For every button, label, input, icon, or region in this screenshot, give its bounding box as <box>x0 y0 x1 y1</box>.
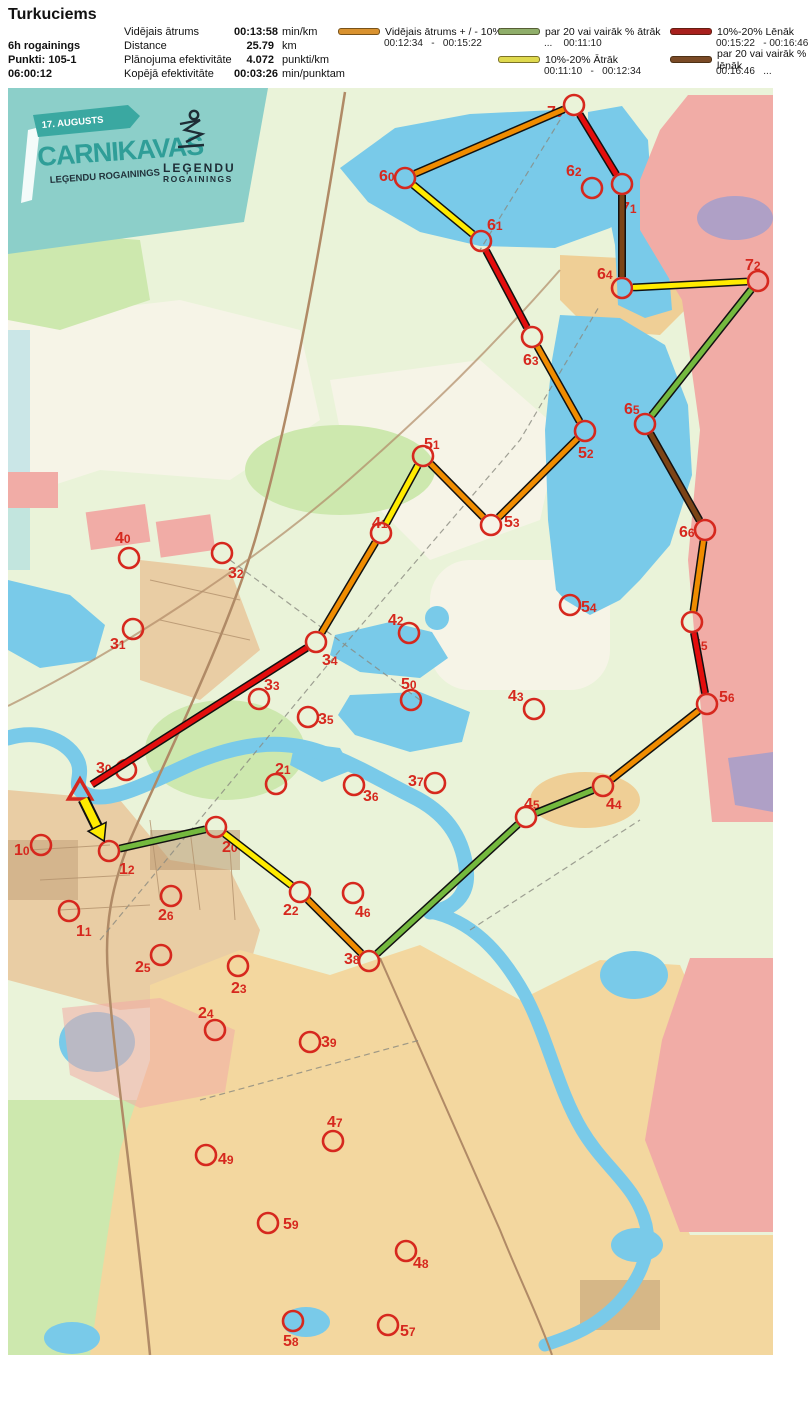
control-label: 46 <box>355 904 371 921</box>
control-label: 25 <box>135 959 151 976</box>
control-label: 10 <box>14 842 30 859</box>
stat-value: 00:13:58 <box>234 25 274 39</box>
legend-swatch <box>670 56 712 63</box>
legend-entry: 10%-20% Ātrāk00:11:10 - 00:12:34 <box>498 53 661 79</box>
legend-entry-row: par 20 vai vairāk % lēnāk <box>670 53 808 66</box>
control-label: 22 <box>283 902 299 919</box>
control-label: 53 <box>504 514 520 531</box>
meta-line: 6h rogainings <box>8 39 80 53</box>
stat-unit: punkti/km <box>282 53 329 67</box>
legend-column-2: par 20 vai vairāk % ātrāk... 00:11:1010%… <box>498 25 661 81</box>
legend-swatch <box>670 28 712 35</box>
legend-range: 00:12:34 - 00:15:22 <box>384 38 502 51</box>
control-label: 42 <box>388 612 404 629</box>
control-label: 49 <box>218 1151 234 1168</box>
meta-line: Punkti: 105-1 <box>8 53 80 67</box>
event-meta: 6h rogainingsPunkti: 105-106:00:12 <box>8 39 80 81</box>
stat-unit: min/punktam <box>282 67 345 81</box>
legend-label: Vidējais ātrums + / - 10% <box>385 26 502 38</box>
control-label: 21 <box>275 761 291 778</box>
control-label: 32 <box>228 565 244 582</box>
stat-unit: km <box>282 39 297 53</box>
legend-column-1: Vidējais ātrums + / - 10%00:12:34 - 00:1… <box>338 25 502 53</box>
control-label: 33 <box>264 677 280 694</box>
stat-value: 00:03:26 <box>234 67 274 81</box>
control-label: 31 <box>110 636 126 653</box>
control-label: 57 <box>400 1323 416 1340</box>
legend-column-3: 10%-20% Lēnāk00:15:22 - 00:16:46par 20 v… <box>670 25 808 81</box>
legend-entry: Vidējais ātrums + / - 10%00:12:34 - 00:1… <box>338 25 502 51</box>
stat-row: Kopējā efektivitāte00:03:26min/punktam <box>124 67 345 81</box>
control-label: 47 <box>327 1114 343 1131</box>
stat-label: Distance <box>124 39 234 53</box>
control-label: 58 <box>283 1333 299 1350</box>
control-label: 65 <box>624 401 640 418</box>
legend-entry-row: 10%-20% Lēnāk <box>670 25 808 38</box>
control-label: 56 <box>719 689 735 706</box>
legend-entry-row: Vidējais ātrums + / - 10% <box>338 25 502 38</box>
stat-row: Plānojuma efektivitāte4.072punkti/km <box>124 53 345 67</box>
control-label: 62 <box>566 163 582 180</box>
control-label: 52 <box>578 445 594 462</box>
control-label: 64 <box>597 266 613 283</box>
control-label: 23 <box>231 980 247 997</box>
map-background <box>8 88 773 1355</box>
control-label: 72 <box>745 257 761 274</box>
legend-entry: par 20 vai vairāk % ātrāk... 00:11:10 <box>498 25 661 51</box>
legend-label: 10%-20% Ātrāk <box>545 54 618 66</box>
control-label: 66 <box>679 524 695 541</box>
control-label: 63 <box>523 352 539 369</box>
control-label: 40 <box>115 530 131 547</box>
control-label: 51 <box>424 436 440 453</box>
legend-entry-row: par 20 vai vairāk % ātrāk <box>498 25 661 38</box>
legend-entry-row: 10%-20% Ātrāk <box>498 53 661 66</box>
control-label: 39 <box>321 1034 337 1051</box>
control-label: 59 <box>283 1216 299 1233</box>
control-label: 11 <box>76 923 92 940</box>
legend-swatch <box>498 28 540 35</box>
stat-row: Distance25.79km <box>124 39 345 53</box>
legend-swatch <box>498 56 540 63</box>
control-label: 26 <box>158 907 174 924</box>
control-label: 61 <box>487 217 503 234</box>
control-label: 24 <box>198 1005 214 1022</box>
logo-line2: ROGAININGS <box>163 174 233 184</box>
stat-value: 25.79 <box>234 39 274 53</box>
legend-range: 00:11:10 - 00:12:34 <box>544 66 661 79</box>
legend-entry: par 20 vai vairāk % lēnāk00:16:46 ... <box>670 53 808 79</box>
stats-table: Vidējais ātrums00:13:58min/kmDistance25.… <box>124 25 345 81</box>
stat-label: Kopējā efektivitāte <box>124 67 234 81</box>
stat-unit: min/km <box>282 25 317 39</box>
stat-label: Plānojuma efektivitāte <box>124 53 234 67</box>
control-label: 37 <box>408 773 424 790</box>
logo-line1: LEĢENDU <box>163 161 236 175</box>
control-label: 44 <box>606 796 622 813</box>
legend-range: ... 00:11:10 <box>544 38 661 51</box>
stat-label: Vidējais ātrums <box>124 25 234 39</box>
control-label: 54 <box>581 599 597 616</box>
stat-value: 4.072 <box>234 53 274 67</box>
control-label: 35 <box>318 711 334 728</box>
legend-swatch <box>338 28 380 35</box>
meta-line: 06:00:12 <box>8 67 80 81</box>
control-label: 43 <box>508 688 524 705</box>
legend-label: 10%-20% Lēnāk <box>717 26 794 38</box>
control-label: 50 <box>401 676 417 693</box>
legend-label: par 20 vai vairāk % ātrāk <box>545 26 661 38</box>
control-label: 12 <box>119 861 135 878</box>
page-title: Turkuciems <box>8 6 97 24</box>
control-label: 48 <box>413 1255 429 1272</box>
stat-row: Vidējais ātrums00:13:58min/km <box>124 25 345 39</box>
route-map: 17. AUGUSTS CARNIKAVAS LEĢENDU ROGAINING… <box>8 88 773 1355</box>
control-label: 60 <box>379 168 395 185</box>
control-label: 36 <box>363 788 379 805</box>
control-label: 34 <box>322 652 338 669</box>
results-header: Turkuciems 6h rogainingsPunkti: 105-106:… <box>0 0 808 88</box>
